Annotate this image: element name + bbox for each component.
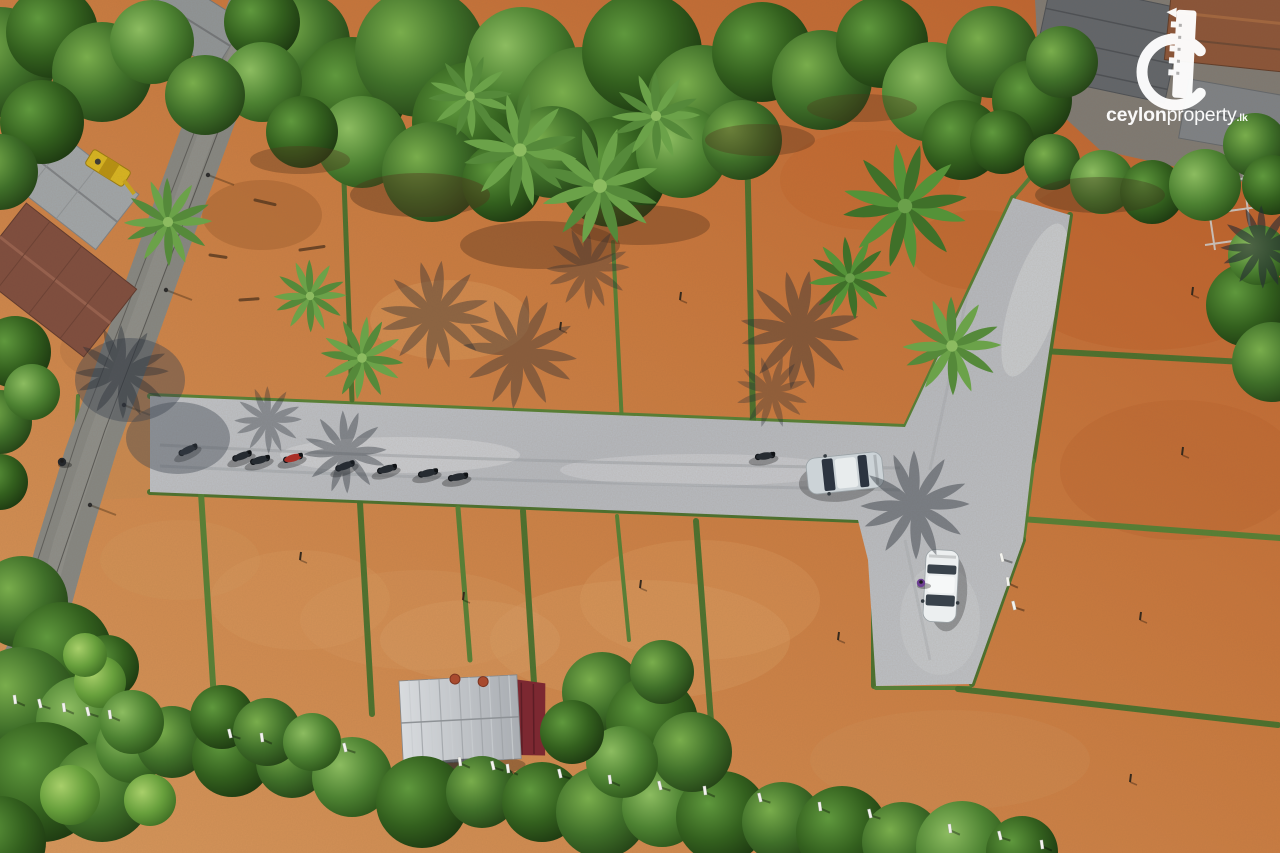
clay-pot xyxy=(450,674,461,685)
logo-text-ceylon: ceylon xyxy=(1106,104,1167,126)
logo-text-lk: .lk xyxy=(1237,112,1248,124)
logo-text-property: property xyxy=(1167,104,1237,126)
logo-wordmark: ceylonproperty.lk xyxy=(1106,104,1248,126)
aerial-photo-canvas: ceylonproperty.lk xyxy=(0,0,1280,853)
clay-pot xyxy=(478,676,489,687)
aerial-photo: ceylonproperty.lk xyxy=(0,0,1280,853)
